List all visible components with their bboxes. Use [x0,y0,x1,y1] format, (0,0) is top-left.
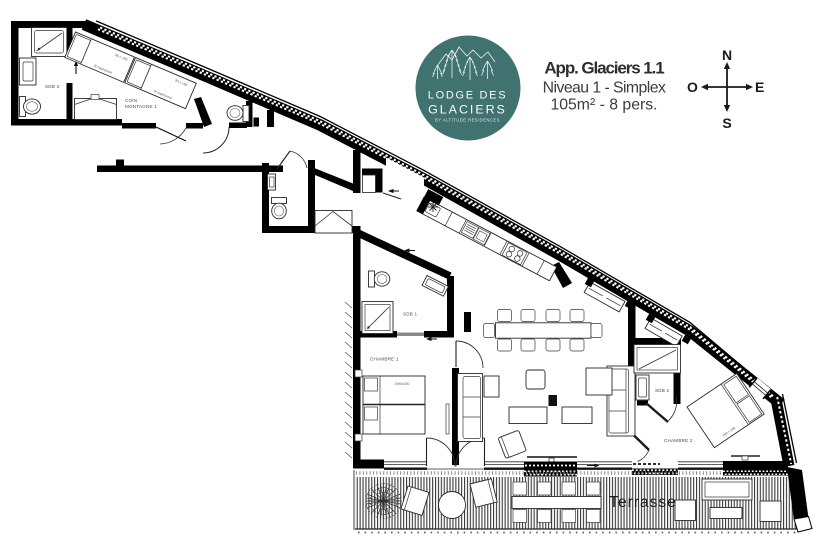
svg-text:Terrasse: Terrasse [609,494,676,511]
svg-text:App. Glaciers 1.1: App. Glaciers 1.1 [544,59,664,78]
svg-text:SDB 2: SDB 2 [655,388,670,393]
svg-text:CHAMBRE 2: CHAMBRE 2 [664,438,693,443]
svg-text:Niveau 1 - Simplex: Niveau 1 - Simplex [543,80,666,97]
svg-text:SDB 3: SDB 3 [45,84,60,89]
svg-text:E: E [755,79,764,95]
svg-text:BY ALTITUDE RESIDENCES: BY ALTITUDE RESIDENCES [435,118,500,123]
svg-text:COIN: COIN [125,98,137,103]
svg-text:LODGE DES: LODGE DES [428,90,508,102]
svg-text:S: S [722,115,731,131]
svg-text:SDB 1: SDB 1 [403,312,418,317]
svg-text:O: O [687,79,698,95]
svg-text:GLACIERS: GLACIERS [428,103,507,117]
svg-text:2x90x200: 2x90x200 [395,382,410,386]
svg-text:CHAMBRE 1: CHAMBRE 1 [370,357,399,362]
svg-text:105m² - 8 pers.: 105m² - 8 pers. [550,97,657,114]
svg-text:N: N [722,47,732,63]
svg-text:MONTAGNE 1: MONTAGNE 1 [125,104,157,109]
